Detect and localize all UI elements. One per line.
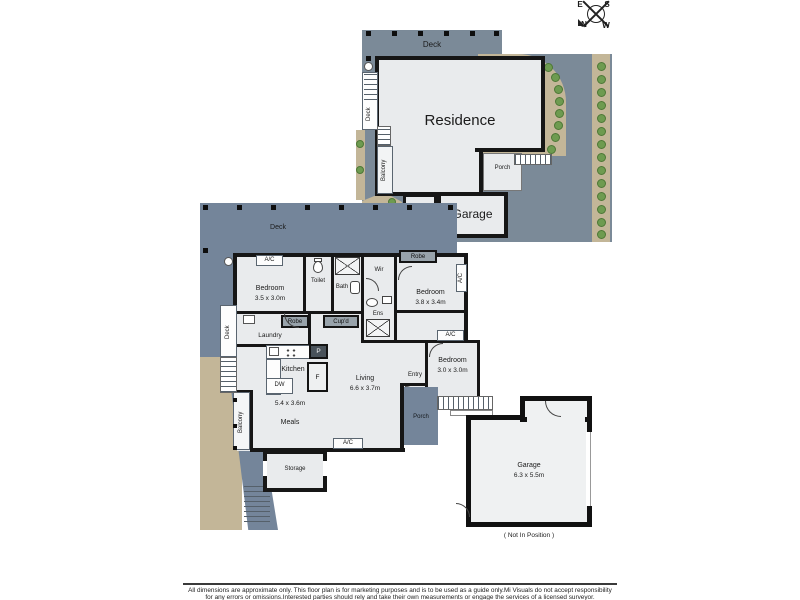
ac-label: A/C [437,332,464,339]
wall [394,253,397,343]
residence-seam [381,146,475,156]
deck-post [305,205,310,210]
meals-label: Meals [250,419,330,427]
bedroom1-name: Bedroom [235,285,305,293]
tree-icon [597,153,606,162]
upper-side-stairs [364,74,377,100]
deck-post [444,31,449,36]
bedroom1-dim: 3.5 x 3.0m [235,295,305,302]
upper-porch-steps [514,154,552,165]
tree-icon [597,140,606,149]
deck-post [448,205,453,210]
tree-icon [544,63,553,72]
living-name: Living [330,375,400,383]
wir-label: Wir [364,267,394,274]
deck-post [407,205,412,210]
deck-post [203,248,208,253]
ac-label: A/C [256,257,283,264]
shower-icon [366,319,390,337]
stove-icon [284,347,297,357]
disclaimer-rule [183,583,617,585]
wall [235,311,364,314]
residence-label: Residence [375,112,545,129]
lower-balcony-label: Balcony [238,396,245,448]
tree-icon [555,97,564,106]
ens-label: Ens [363,311,393,318]
tree-icon [356,166,364,174]
deck-post [418,31,423,36]
floor-plan-page: Residence Deck Balcony Porch Store Garag… [0,0,800,600]
upper-balcony-label: Balcony [381,149,388,192]
tree-icon [356,140,364,148]
deck-post [373,205,378,210]
deck-post [494,31,499,36]
bedroom3-name: Bedroom [425,357,480,365]
tree-icon [597,205,606,214]
lower-stairs [437,396,493,410]
deck-post [233,398,237,402]
bedroom2-dim: 3.8 x 3.4m [397,299,464,306]
residence-main [375,56,545,152]
tree-icon [554,85,563,94]
compass-west-label: W [600,21,612,30]
toilet-icon [366,298,378,307]
storage-label: Storage [263,466,327,473]
lower-deck-label: Deck [238,224,318,232]
tree-icon [597,218,606,227]
living-dim: 6.6 x 3.7m [330,385,400,392]
tree-icon [554,121,563,130]
tree-icon [555,109,564,118]
tree-icon [551,73,560,82]
upper-porch-label: Porch [483,165,522,172]
deck-post [203,205,208,210]
upper-stairs-2 [377,126,391,146]
toilet-icon [313,261,323,273]
tree-icon [547,145,556,154]
tree-icon [597,179,606,188]
shower-icon [335,257,360,275]
hw-unit-icon [364,62,373,71]
deck-post [366,31,371,36]
deck-post [392,31,397,36]
lower-side-stairs [220,357,237,393]
cupboard-box: Cup'd [323,315,359,328]
deck-post [233,424,237,428]
deck-post [339,205,344,210]
tree-icon [597,230,606,239]
meals-dim: 5.4 x 3.6m [250,400,330,407]
deck-post [233,446,237,450]
tree-icon [597,114,606,123]
upper-side-deck-label: Deck [366,101,373,128]
tree-icon [597,127,606,136]
toilet-tank-icon [314,258,322,262]
wall [394,310,467,313]
tree-icon [597,192,606,201]
ac-label: A/C [458,265,465,291]
tree-icon [551,133,560,142]
disclaimer-line2: for any errors or omissions.Interested p… [100,594,700,600]
tree-icon [597,101,606,110]
sink-icon [269,347,279,356]
deck-post [271,205,276,210]
bathtub-icon [350,281,360,294]
deck-post [237,205,242,210]
deck-post [470,31,475,36]
upper-side-deck: Deck [362,72,378,130]
lower-side-deck-label: Deck [225,309,232,355]
compass-north-label: N [578,20,590,29]
hw-unit-icon [224,257,233,266]
robe-box: Robe [399,250,437,263]
tree-icon [597,88,606,97]
dw-label: DW [266,382,293,389]
vanity-icon [382,296,392,304]
detached-garage-name: Garage [466,462,592,470]
lower-porch-label: Porch [404,414,438,421]
ac-label: A/C [333,440,363,447]
upper-balcony: Balcony [377,146,393,194]
detached-garage-body [466,415,592,527]
deck-post [366,56,371,61]
upper-deck-label: Deck [362,40,502,49]
compass-east-label: E [574,0,586,9]
laundry-trough-icon [243,315,255,324]
tree-icon [597,75,606,84]
compass-south-label: S [601,0,613,9]
house-base-lower [237,343,403,451]
bedroom2-name: Bedroom [397,289,464,297]
tree-icon [597,62,606,71]
toilet-label: Toilet [303,278,333,285]
laundry-label: Laundry [240,332,300,339]
lower-side-deck: Deck [220,305,237,357]
pantry-box: P [309,344,328,359]
fridge-box: F [307,362,328,392]
tree-icon [597,166,606,175]
not-in-position-note: ( Not In Position ) [466,532,592,539]
bedroom3-dim: 3.0 x 3.0m [425,367,480,374]
detached-garage-dim: 6.3 x 5.5m [466,472,592,479]
